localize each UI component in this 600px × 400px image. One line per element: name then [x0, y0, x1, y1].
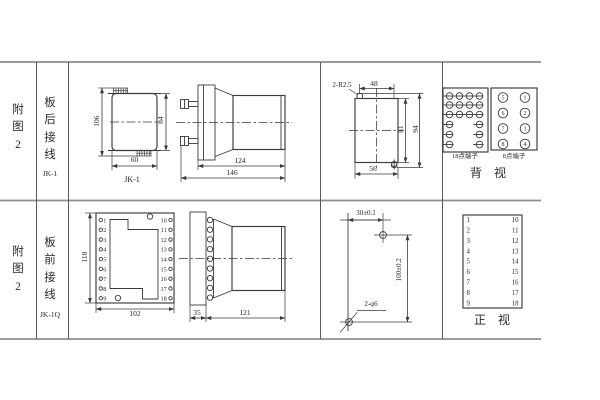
terminal-dot-left [99, 238, 102, 241]
terminal-dot-left [99, 248, 102, 251]
table-number-right: 14 [512, 259, 519, 266]
circled-terminal-number: 7 [502, 127, 505, 133]
note-drill-holes: 2-φ6 [351, 301, 391, 309]
terminal-dot-left [99, 277, 102, 280]
terminal-number-right: 15 [161, 266, 167, 273]
terminal-dot-right [169, 228, 172, 231]
caption-jk1: JK-1 [110, 176, 154, 185]
circled-terminal-number: 3 [524, 127, 527, 133]
table-number-left: 3 [467, 238, 471, 245]
dim-146: 146 [217, 169, 247, 177]
terminal-dot-left [99, 257, 102, 260]
terminal-number-left: 7 [103, 276, 106, 283]
circled-terminal-number: 5 [502, 96, 505, 102]
dim-48: 48 [362, 80, 386, 88]
label-18pt-terminal: 18点端子 [441, 153, 489, 160]
table-number-right: 13 [512, 248, 519, 255]
terminal-number-left: 3 [103, 237, 106, 244]
terminal-screw-bottom [181, 137, 199, 146]
table-grid [0, 62, 541, 339]
side-terminal [207, 295, 212, 300]
wiring-type-label-row1: 板后接线 [42, 95, 58, 164]
terminal-number-left: 4 [103, 247, 107, 254]
circled-terminal-number: 8 [502, 142, 505, 148]
table-number-left: 2 [467, 227, 471, 234]
table-number-right: 12 [512, 238, 519, 245]
dim-118: 118 [81, 245, 89, 269]
terminal-screw-top [181, 100, 199, 109]
mounting-hole-bottom [115, 295, 120, 300]
dim-30-tolerance: 30±0.1 [346, 210, 386, 218]
terminal-number-left: 8 [103, 286, 106, 293]
table-number-left: 9 [467, 301, 471, 308]
table-number-right: 18 [512, 301, 519, 308]
caption-front-view: 正 视 [466, 314, 518, 327]
side-terminal [207, 266, 212, 271]
model-label-jk1q: JK-1Q [33, 311, 67, 319]
terminal-number-right: 11 [161, 227, 167, 234]
table-number-right: 10 [512, 217, 519, 224]
dim-81: 81 [397, 117, 405, 141]
circled-terminal-number: 4 [524, 142, 527, 148]
dim-84: 84 [157, 108, 165, 132]
terminal-dot-right [169, 248, 172, 251]
table-number-right: 16 [512, 280, 519, 287]
terminal-dot-right [169, 257, 172, 260]
circled-terminal-number: 2 [524, 111, 527, 117]
table-number-left: 5 [467, 259, 471, 266]
figure-label-row2: 附图2 [10, 244, 26, 296]
dim-100-tolerance: 100±0.2 [396, 248, 404, 292]
terminal-number-right: 17 [161, 286, 167, 293]
table-number-right: 11 [512, 227, 519, 234]
terminal-number-right: 12 [161, 237, 167, 244]
terminal-dot-left [99, 218, 102, 221]
terminal-dot-left [99, 287, 102, 290]
terminal-dot-right [169, 287, 172, 290]
caption-rear-view: 背 视 [462, 167, 514, 180]
terminal-number-right: 13 [161, 247, 167, 254]
side-terminal [207, 237, 212, 242]
dim-94: 94 [412, 117, 420, 141]
table-number-left: 4 [467, 248, 471, 255]
dim-35: 35 [186, 309, 208, 317]
terminal-number-left: 1 [103, 217, 106, 224]
rear-terminal-view: 51627384 [443, 88, 537, 152]
table-number-right: 17 [512, 290, 519, 297]
note-corner-radius: 2-R2.5 [325, 82, 359, 90]
dim-102: 102 [120, 310, 150, 318]
side-terminal [207, 276, 212, 281]
terminal-block-18pt [443, 93, 483, 148]
terminal-dot-left [99, 297, 102, 300]
terminal-dot-left [99, 267, 102, 270]
terminal-number-left: 5 [103, 257, 106, 264]
terminal-dot-right [169, 297, 172, 300]
mounting-tab-top [114, 88, 128, 94]
model-label-jk1: JK-1 [34, 170, 66, 178]
terminal-block-8pt: 51627384 [498, 93, 530, 149]
jk1q-front-view-drawing: 110211312413514615716817918 [85, 213, 174, 313]
dim-124: 124 [225, 157, 255, 165]
table-number-left: 6 [467, 269, 471, 276]
terminal-dot-right [169, 218, 172, 221]
side-terminal [207, 285, 212, 290]
table-number-left: 7 [467, 280, 471, 287]
terminal-number-columns: 110211312413514615716817918 [467, 217, 520, 308]
jk1q-side-view-drawing [179, 212, 293, 322]
table-number-left: 1 [467, 217, 470, 224]
side-terminal [207, 217, 212, 222]
dim-60: 60 [122, 156, 147, 164]
terminal-number-right: 14 [161, 257, 168, 264]
circled-terminal-number: 1 [524, 96, 527, 102]
figure-label-row1: 附图2 [10, 102, 26, 154]
circled-terminal-number: 6 [502, 111, 505, 117]
front-terminal-table: 110211312413514615716817918 [463, 215, 522, 308]
terminal-number-right: 18 [161, 296, 167, 303]
terminal-number-left: 6 [103, 266, 106, 273]
terminal-dot-left [99, 228, 102, 231]
drawing-canvas: 51627384 110211312413514615716817918 [0, 0, 600, 400]
wiring-type-label-row2: 板前接线 [42, 235, 58, 304]
dim-121: 121 [231, 309, 259, 317]
mounting-hole-top [147, 214, 152, 219]
terminal-dot-right [169, 277, 172, 280]
terminal-dot-right [169, 238, 172, 241]
table-number-right: 15 [512, 269, 519, 276]
terminal-number-left: 2 [103, 227, 106, 234]
dim-106: 106 [93, 109, 101, 133]
label-8pt-terminal: 8点端子 [490, 153, 538, 160]
terminal-number-right: 16 [161, 276, 167, 283]
terminal-number-right: 10 [161, 217, 167, 224]
terminal-dot-right [169, 267, 172, 270]
dim-56: 56 [361, 165, 385, 173]
side-terminal [207, 246, 212, 251]
drawing-sheet: 51627384 110211312413514615716817918 [0, 0, 600, 400]
table-number-left: 8 [467, 290, 471, 297]
terminal-number-left: 9 [103, 296, 106, 303]
side-terminal [207, 227, 212, 232]
